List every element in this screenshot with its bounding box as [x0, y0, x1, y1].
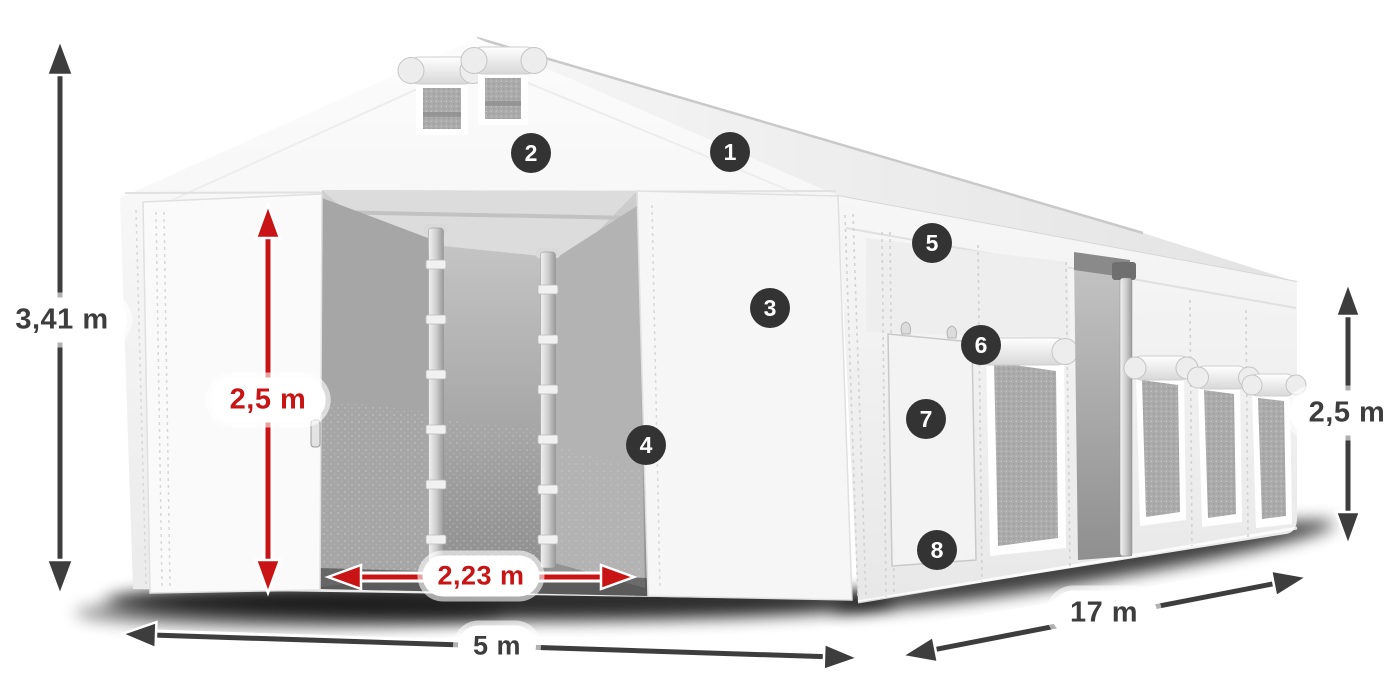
- dimension-entrance-height: 2,5 m: [211, 378, 326, 423]
- front-door-opening: [320, 190, 648, 596]
- dimension-length: 17 m: [1051, 591, 1157, 636]
- dimension-entrance-width: 2,23 m: [422, 556, 539, 597]
- dimension-total-height: 3,41 m: [0, 298, 128, 343]
- rear-windows: [1124, 356, 1306, 528]
- dimension-side-height: 2,5 m: [1290, 391, 1400, 436]
- marker-8: 8: [917, 530, 957, 570]
- marker-2: 2: [511, 133, 551, 173]
- marker-5: 5: [912, 223, 952, 263]
- right-door-panel: [637, 191, 852, 600]
- side-door-panel: [888, 322, 976, 566]
- marker-7: 7: [906, 399, 946, 439]
- door-handle: [311, 420, 320, 447]
- product-diagram: 3,41 m 2,5 m 2,23 m 5 m 17 m 2,5 m 1 2 3…: [0, 0, 1400, 700]
- marker-6: 6: [961, 325, 1001, 365]
- dimension-width: 5 m: [458, 626, 536, 667]
- marker-4: 4: [626, 425, 666, 465]
- side-opening: [1074, 252, 1136, 560]
- marker-3: 3: [750, 288, 790, 328]
- marker-1: 1: [710, 132, 750, 172]
- tent-illustration: [0, 0, 1400, 700]
- side-wall: [838, 196, 1306, 602]
